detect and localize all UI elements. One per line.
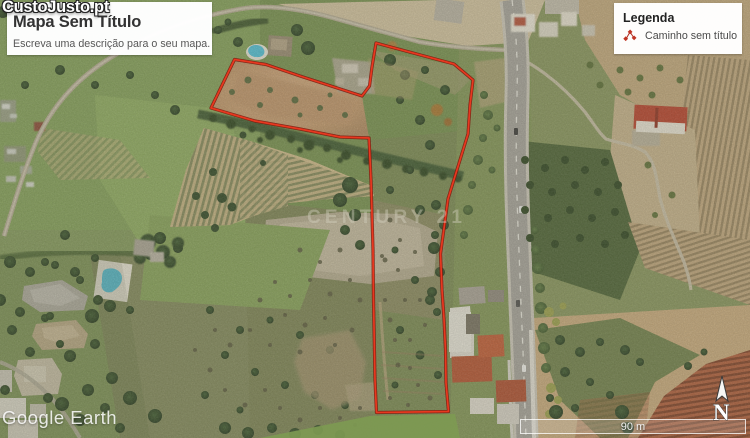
svg-text:CENTURY 21: CENTURY 21 [307,207,466,228]
svg-text:N: N [713,400,730,424]
